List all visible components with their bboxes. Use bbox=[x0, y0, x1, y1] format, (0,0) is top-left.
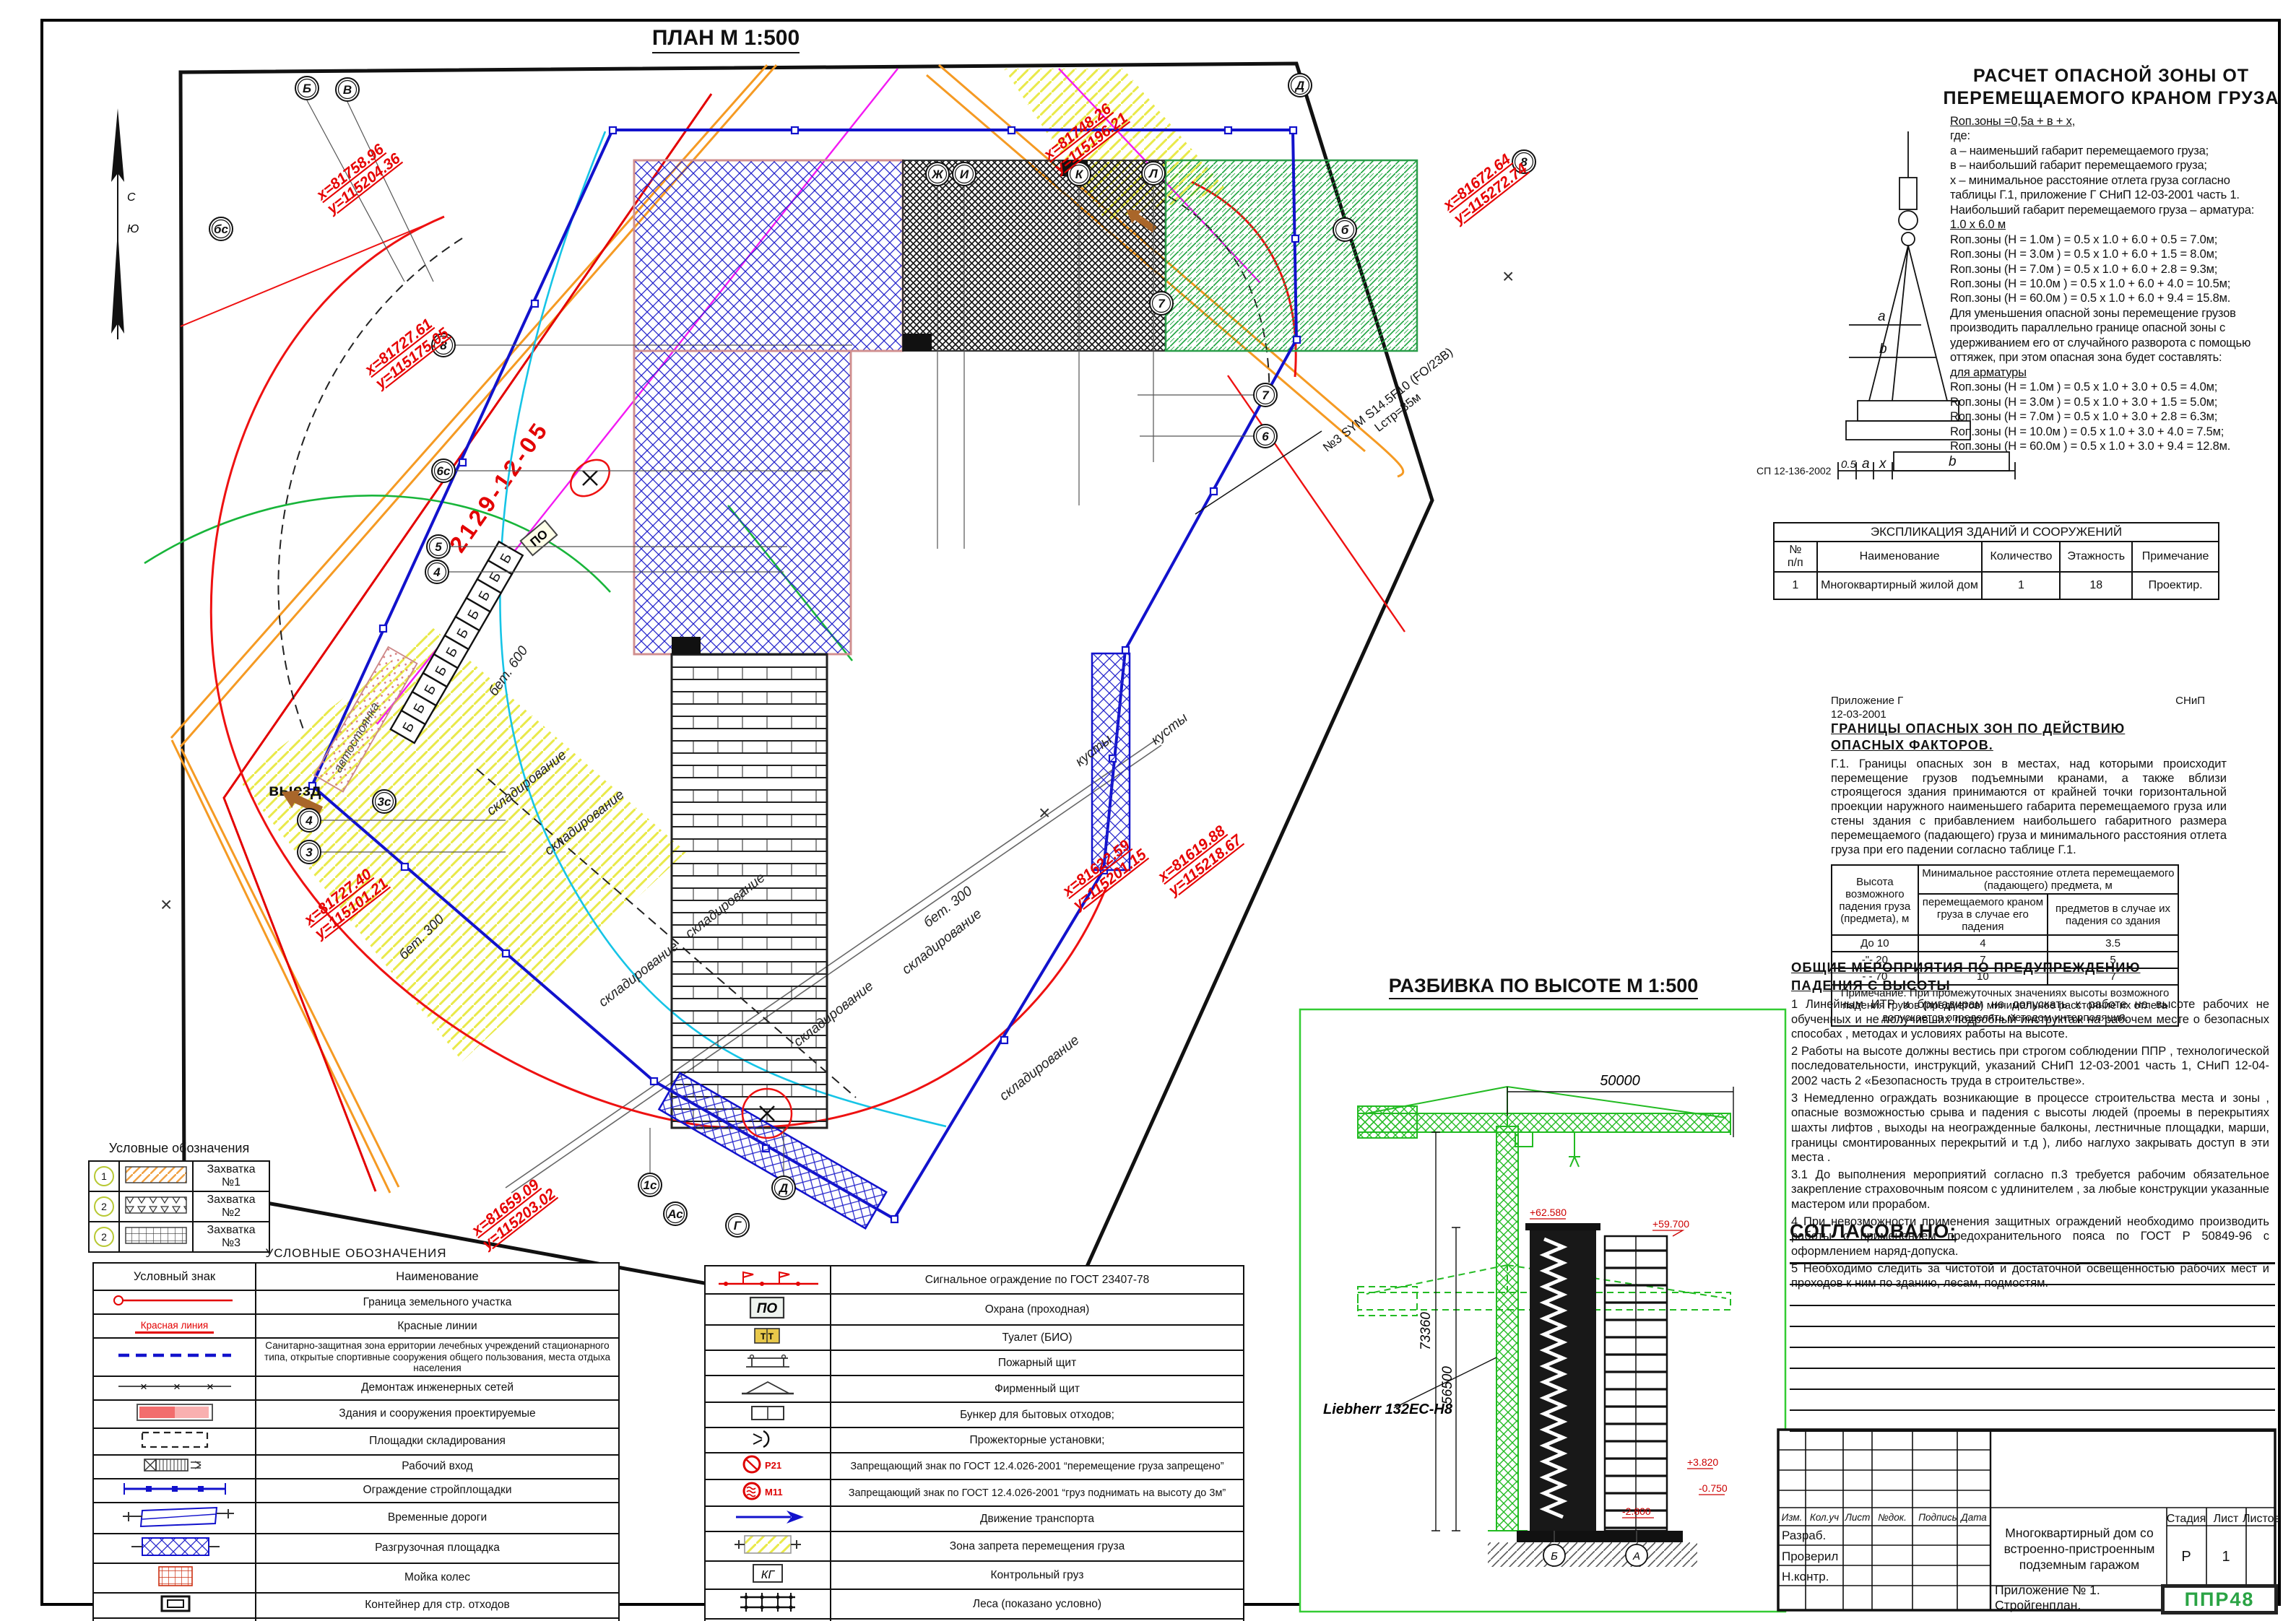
svg-text:b: b bbox=[1949, 454, 1957, 469]
explication-title: ЭКСПЛИКАЦИЯ ЗДАНИЙ И СООРУЖЕНИЙ bbox=[1774, 523, 2219, 542]
svg-text:3: 3 bbox=[306, 846, 313, 859]
sanitary-zone-icon bbox=[110, 1346, 240, 1365]
svg-text:Т Т: Т Т bbox=[761, 1331, 774, 1342]
svg-text:56500: 56500 bbox=[1440, 1366, 1455, 1404]
svg-text:Дата: Дата bbox=[1959, 1512, 1987, 1523]
svg-text:Разраб.: Разраб. bbox=[1782, 1529, 1826, 1542]
svg-text:В: В bbox=[343, 83, 352, 97]
work-entrance-icon bbox=[110, 1456, 240, 1474]
svg-text:бет. 600: бет. 600 bbox=[486, 643, 532, 699]
svg-text:a: a bbox=[1878, 309, 1886, 324]
signature-line bbox=[1790, 1369, 2275, 1390]
svg-text:×: × bbox=[1039, 801, 1050, 824]
scaffolding-icon bbox=[710, 1590, 826, 1615]
svg-text:И: И bbox=[960, 168, 969, 181]
svg-text:×: × bbox=[1502, 265, 1514, 287]
svg-text:×: × bbox=[173, 1380, 181, 1394]
svg-text:Д: Д bbox=[1294, 79, 1304, 92]
svg-text:×: × bbox=[160, 893, 172, 916]
signature-line bbox=[1790, 1306, 2275, 1327]
svg-text:бс: бс bbox=[214, 222, 229, 236]
toilet-icon: Т Т bbox=[710, 1326, 826, 1346]
waste-container-icon bbox=[110, 1594, 240, 1614]
guard-post-icon: ПО bbox=[710, 1295, 826, 1321]
utility-demolition-icon: ××× bbox=[110, 1377, 240, 1396]
legend-right: Сигнальное ограждение по ГОСТ 23407-78 П… bbox=[704, 1265, 1244, 1621]
plan-view-title: ПЛАН М 1:500 bbox=[581, 26, 870, 51]
svg-text:ПО: ПО bbox=[757, 1301, 778, 1316]
wheel-wash-icon bbox=[110, 1564, 240, 1589]
legend-zahvatki: Условные обозначения 1 Захватка №1 2 Зах… bbox=[88, 1141, 270, 1253]
svg-text:50000: 50000 bbox=[1600, 1073, 1640, 1089]
svg-text:73360: 73360 bbox=[1418, 1312, 1434, 1350]
floodlight-icon bbox=[710, 1428, 826, 1448]
svg-text:0.5: 0.5 bbox=[1841, 459, 1857, 471]
svg-text:6с: 6с bbox=[437, 464, 451, 478]
svg-text:Б: Б bbox=[303, 82, 311, 95]
svg-text:Ю: Ю bbox=[127, 223, 139, 235]
signal-fence-icon bbox=[710, 1266, 826, 1290]
svg-text:7: 7 bbox=[1262, 388, 1270, 402]
svg-text:1с: 1с bbox=[644, 1178, 657, 1192]
hatch-zone1-icon bbox=[124, 1165, 188, 1184]
storage-area-icon bbox=[110, 1429, 240, 1451]
svg-text:x: x bbox=[1879, 456, 1887, 471]
elevation-title: РАЗБИВКА ПО ВЫСОТЕ М 1:500 bbox=[1300, 975, 1787, 997]
svg-text:Д: Д bbox=[778, 1181, 788, 1195]
svg-text:Изм.: Изм. bbox=[1782, 1512, 1803, 1523]
hatch-zone2-icon bbox=[124, 1196, 188, 1214]
svg-text:А: А bbox=[1632, 1550, 1640, 1563]
svg-text:Л: Л bbox=[1148, 167, 1158, 181]
svg-text:Г: Г bbox=[734, 1219, 742, 1233]
svg-text:-2.800: -2.800 bbox=[1622, 1505, 1651, 1517]
svg-text:М11: М11 bbox=[765, 1487, 783, 1498]
north-arrow-icon: С Ю bbox=[111, 108, 139, 339]
svg-text:+59.700: +59.700 bbox=[1652, 1218, 1689, 1230]
svg-text:Р21: Р21 bbox=[765, 1460, 781, 1471]
svg-text:+3.820: +3.820 bbox=[1687, 1456, 1718, 1468]
svg-text:Лист: Лист bbox=[1845, 1512, 1871, 1523]
svg-text:b: b bbox=[1879, 342, 1887, 357]
svg-text:Лист: Лист bbox=[2214, 1513, 2239, 1525]
explication-table: ЭКСПЛИКАЦИЯ ЗДАНИЙ И СООРУЖЕНИЙ № п/п На… bbox=[1773, 522, 2219, 600]
zone-number-badge: 1 bbox=[94, 1166, 114, 1186]
svg-text:×: × bbox=[140, 1380, 147, 1394]
company-board-icon bbox=[710, 1376, 826, 1398]
svg-text:складирование: складирование bbox=[596, 939, 681, 1010]
drawing-sheet: 2129-12-05 bbox=[0, 0, 2296, 1621]
svg-text:×: × bbox=[207, 1380, 214, 1394]
svg-text:5: 5 bbox=[435, 540, 442, 554]
svg-text:Ж: Ж bbox=[931, 168, 944, 181]
legend-left: УСЛОВНЫЕ ОБОЗНАЧЕНИЯ Условный знакНаимен… bbox=[92, 1246, 620, 1621]
signature-line bbox=[1790, 1264, 2275, 1285]
svg-text:Подпись: Подпись bbox=[1918, 1512, 1957, 1523]
svg-text:СП 12-136-2002: СП 12-136-2002 bbox=[1756, 465, 1832, 477]
zone-number-badge: 2 bbox=[94, 1227, 114, 1247]
traffic-direction-icon bbox=[710, 1507, 826, 1527]
svg-text:-0.750: -0.750 bbox=[1699, 1482, 1728, 1494]
prohibit-sign-m11-icon: М11 bbox=[710, 1480, 826, 1502]
svg-text:Б: Б bbox=[1551, 1550, 1558, 1563]
svg-text:6: 6 bbox=[1262, 430, 1269, 443]
unloading-platform-icon bbox=[110, 1534, 240, 1559]
stamp-appendix: Приложение № 1. Стройгенплан. bbox=[1995, 1587, 2164, 1609]
svg-text:Стадия: Стадия bbox=[2167, 1513, 2206, 1525]
elevation-view: 50000 73360 56500 Liebherr 132EC-H8 +62.… bbox=[1300, 1009, 1785, 1612]
signature-line bbox=[1790, 1285, 2275, 1306]
signature-line bbox=[1790, 1390, 2275, 1411]
svg-text:4: 4 bbox=[433, 565, 441, 579]
svg-text:С: С bbox=[127, 191, 136, 204]
prohibit-sign-p21-icon: Р21 bbox=[710, 1453, 826, 1475]
svg-text:Ас: Ас bbox=[667, 1207, 683, 1221]
household-waste-bin-icon bbox=[710, 1403, 826, 1423]
no-load-zone-icon bbox=[710, 1532, 826, 1557]
svg-text:кусты: кусты bbox=[1148, 710, 1190, 748]
signature-line bbox=[1790, 1348, 2275, 1369]
red-line-icon: Красная линия bbox=[135, 1320, 214, 1334]
approved-block: СОГЛАСОВАНО: bbox=[1790, 1220, 2275, 1432]
control-load-icon: КГ bbox=[710, 1562, 826, 1585]
fall-zone-boundary-icon bbox=[110, 1619, 240, 1621]
site-fence-icon bbox=[110, 1479, 240, 1498]
svg-text:Проверил: Проверил bbox=[1782, 1550, 1838, 1563]
svg-text:б: б bbox=[1341, 223, 1349, 237]
svg-text:1: 1 bbox=[2222, 1549, 2230, 1565]
svg-text:Р: Р bbox=[2181, 1549, 2191, 1565]
signature-line bbox=[1790, 1243, 2275, 1264]
calc-body: Rоп.зоны =0,5а + в + х, где: а – наимень… bbox=[1950, 114, 2276, 453]
temporary-road-icon bbox=[110, 1503, 240, 1529]
svg-text:4: 4 bbox=[305, 814, 313, 827]
signature-line bbox=[1790, 1327, 2275, 1348]
ppr48-logo: ППР48 bbox=[2161, 1584, 2278, 1615]
svg-text:Листов: Листов bbox=[2243, 1513, 2280, 1525]
guard-post: ПО bbox=[521, 521, 557, 555]
svg-text:складирование: складирование bbox=[997, 1033, 1082, 1104]
stamp-project-title: Многоквартирный дом со встроенно-пристро… bbox=[1995, 1513, 2164, 1586]
svg-text:К: К bbox=[1075, 168, 1084, 181]
svg-text:7: 7 bbox=[1158, 297, 1166, 310]
signature-line bbox=[1790, 1411, 2275, 1432]
calc-title: РАСЧЕТ ОПАСНОЙ ЗОНЫ ОТПЕРЕМЕЩАЕМОГО КРАН… bbox=[1941, 65, 2281, 110]
designed-building-icon bbox=[110, 1401, 240, 1424]
crane-note: №3 SYM S14.5F10 (FO/23В) Lстр=35м bbox=[1195, 345, 1465, 514]
svg-text:+62.580: +62.580 bbox=[1530, 1207, 1567, 1218]
svg-text:КГ: КГ bbox=[761, 1569, 775, 1581]
site-boundary-icon bbox=[110, 1291, 240, 1310]
fire-shield-icon bbox=[710, 1351, 826, 1371]
svg-text:Liebherr 132EC-H8: Liebherr 132EC-H8 bbox=[1323, 1401, 1453, 1417]
svg-text:3с: 3с bbox=[378, 795, 391, 809]
svg-text:Кол.уч: Кол.уч bbox=[1810, 1512, 1839, 1523]
hatch-zone3-icon bbox=[124, 1226, 188, 1245]
svg-text:a: a bbox=[1862, 456, 1870, 471]
svg-text:№док.: №док. bbox=[1878, 1512, 1907, 1523]
svg-text:Н.контр.: Н.контр. bbox=[1782, 1570, 1829, 1583]
zone-number-badge: 2 bbox=[94, 1196, 114, 1217]
